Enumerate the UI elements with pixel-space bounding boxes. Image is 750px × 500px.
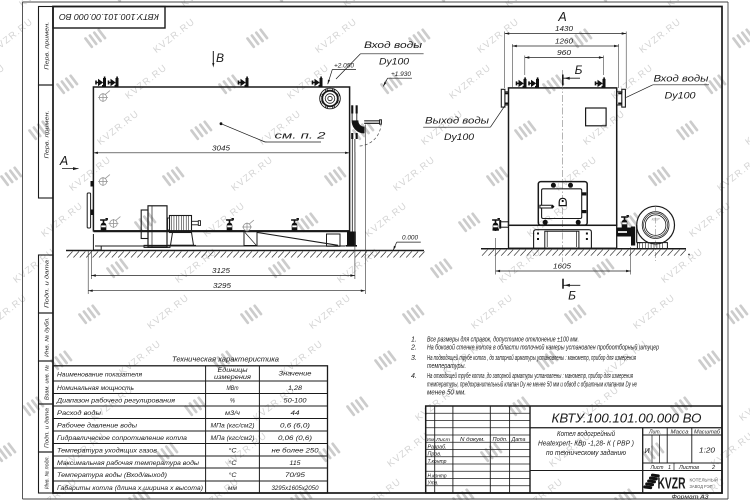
svg-text:МПа (кгс/см2): МПа (кгс/см2) <box>211 435 255 442</box>
svg-text:Вход воды: Вход воды <box>654 74 710 84</box>
svg-text:Т.контр: Т.контр <box>428 459 447 465</box>
svg-text:2.: 2. <box>410 345 417 352</box>
svg-text:ЗАВОД РЭП: ЗАВОД РЭП <box>690 484 713 489</box>
svg-text:°С: °С <box>229 447 237 455</box>
svg-text:Масштаб: Масштаб <box>694 430 721 436</box>
svg-text:Перв. примен.: Перв. примен. <box>44 111 50 159</box>
svg-text:3045: 3045 <box>212 145 230 152</box>
svg-text:Инв. № дубл.: Инв. № дубл. <box>44 317 50 357</box>
svg-text:4.: 4. <box>411 373 417 380</box>
svg-text:Разраб.: Разраб. <box>428 445 447 451</box>
svg-text:Температура уходящих газов: Температура уходящих газов <box>57 447 158 455</box>
svg-text:А: А <box>59 154 68 168</box>
svg-text:Котел водогрейный: Котел водогрейный <box>557 430 615 438</box>
svg-text:Значение: Значение <box>279 371 312 378</box>
svg-text:0,06 (0,6): 0,06 (0,6) <box>278 435 312 442</box>
svg-text:1430: 1430 <box>555 26 573 33</box>
svg-text:960: 960 <box>557 50 571 57</box>
svg-text:Рабочее давление воды: Рабочее давление воды <box>57 422 137 430</box>
svg-text:Лист: Лист <box>650 465 664 471</box>
svg-text:Подп. и дата: Подп. и дата <box>44 260 50 308</box>
svg-text:Лит.: Лит. <box>648 430 661 436</box>
svg-text:Техническая характеристика: Техническая характеристика <box>172 355 279 364</box>
svg-text:1605: 1605 <box>553 263 571 270</box>
svg-text:%: % <box>230 398 235 405</box>
svg-text:Единицы: Единицы <box>218 366 248 374</box>
svg-text:Лист: Лист <box>435 437 450 443</box>
svg-text:см. п. 2: см. п. 2 <box>275 131 327 142</box>
svg-text:КОТЕЛЬНЫЙ: КОТЕЛЬНЫЙ <box>690 476 719 483</box>
svg-text:Номинальная мощность: Номинальная мощность <box>57 385 135 392</box>
svg-text:Пров.: Пров. <box>428 452 442 458</box>
svg-text:1.: 1. <box>411 336 417 343</box>
svg-text:м3/ч: м3/ч <box>225 410 241 417</box>
svg-text:+1.930: +1.930 <box>391 71 412 78</box>
svg-text:50-100: 50-100 <box>284 398 307 405</box>
svg-text:0,6 (6,0): 0,6 (6,0) <box>280 423 310 430</box>
svg-text:1260: 1260 <box>555 39 573 46</box>
svg-text:температуры.: температуры. <box>427 363 466 370</box>
svg-text:°С: °С <box>229 471 237 479</box>
svg-text:Взам. инв. №: Взам. инв. № <box>44 365 50 400</box>
svg-text:Утв.: Утв. <box>428 481 439 487</box>
svg-text:Выход воды: Выход воды <box>425 116 490 126</box>
svg-text:Б: Б <box>575 63 583 77</box>
svg-text:115: 115 <box>290 460 301 467</box>
svg-text:3295: 3295 <box>213 283 231 290</box>
svg-text:Диапазон рабочего регулировани: Диапазон рабочего регулирования <box>56 397 176 405</box>
svg-text:N докум.: N докум. <box>460 437 485 443</box>
svg-text:КВТУ.100.101.00.000 ВО: КВТУ.100.101.00.000 ВО <box>58 12 159 21</box>
svg-text:Температура воды (Вход/выход): Температура воды (Вход/выход) <box>57 471 167 479</box>
svg-text:Подп. и дата: Подп. и дата <box>44 408 50 448</box>
svg-text:44: 44 <box>291 410 300 417</box>
svg-text:0.000: 0.000 <box>402 235 419 242</box>
svg-text:мм: мм <box>228 485 238 492</box>
svg-text:Все размеры для справок, допус: Все размеры для справок, допустимое откл… <box>427 335 579 343</box>
svg-text:менее 50 мм.: менее 50 мм. <box>427 390 466 397</box>
svg-text:Максимальная рабочая температу: Максимальная рабочая температура воды <box>57 459 199 467</box>
svg-text:МПа (кгс/см2): МПа (кгс/см2) <box>211 423 255 430</box>
svg-text:Наименование показателя: Наименование показателя <box>57 372 142 379</box>
svg-text:°С: °С <box>229 459 237 467</box>
svg-text:Масса: Масса <box>671 430 689 436</box>
svg-text:+2.050: +2.050 <box>334 62 355 69</box>
svg-text:КВЗР: КВЗР <box>652 218 661 222</box>
svg-text:Heatexpert- КВр -1,28- К ( РВР: Heatexpert- КВр -1,28- К ( РВР ) <box>538 441 634 448</box>
svg-text:Dy100: Dy100 <box>444 132 475 142</box>
svg-text:Подп.: Подп. <box>493 437 508 443</box>
svg-text:Гидравлическое сопротивление к: Гидравлическое сопротивление котла <box>57 434 187 442</box>
svg-text:На отводящей трубе котла ,до з: На отводящей трубе котла ,до запорной ар… <box>427 372 633 380</box>
svg-text:2: 2 <box>711 465 715 471</box>
svg-text:не более 250: не более 250 <box>272 447 319 455</box>
svg-text:Dy100: Dy100 <box>665 91 697 101</box>
svg-text:измерения: измерения <box>214 374 252 381</box>
svg-text:KVZR: KVZR <box>658 476 686 493</box>
svg-text:Перв. примен.: Перв. примен. <box>44 22 50 70</box>
svg-text:Габариты котла (длина х ширина: Габариты котла (длина х ширина х высота) <box>57 484 203 492</box>
svg-text:КВТУ.100.101.00.000 ВО: КВТУ.100.101.00.000 ВО <box>552 411 702 426</box>
svg-text:Инв. № подл.: Инв. № подл. <box>44 456 50 489</box>
svg-text:1: 1 <box>668 465 671 471</box>
svg-text:А: А <box>557 10 566 24</box>
svg-text:Расход воды: Расход воды <box>57 409 101 417</box>
svg-text:Н.контр: Н.контр <box>428 474 447 480</box>
svg-text:На подводящей трубе котла , д: На подводящей трубе котла , до запорной … <box>427 354 636 362</box>
svg-text:3.: 3. <box>411 355 417 362</box>
svg-text:Формат А3: Формат А3 <box>672 494 710 500</box>
svg-text:Изм: Изм <box>427 437 435 443</box>
svg-text:1:20: 1:20 <box>699 446 715 455</box>
svg-text:В: В <box>216 51 224 65</box>
svg-text:3125: 3125 <box>212 268 230 275</box>
svg-text:1,28: 1,28 <box>288 385 302 392</box>
svg-text:МВт: МВт <box>227 385 240 392</box>
svg-text:температуры, предохранительный: температуры, предохранительный клапан Dу… <box>427 380 637 388</box>
svg-text:На боковой стенке котла в обла: На боковой стенке котла в области топочн… <box>427 344 659 352</box>
svg-text:Дата: Дата <box>510 437 525 443</box>
svg-text:по техническому заданию: по техническому заданию <box>546 449 627 457</box>
svg-text:3295х1605х2050: 3295х1605х2050 <box>272 485 319 492</box>
svg-text:Dy100: Dy100 <box>379 57 410 67</box>
svg-text:Листов: Листов <box>678 465 699 471</box>
svg-text:Б: Б <box>568 288 576 302</box>
svg-text:И: И <box>645 446 651 455</box>
svg-text:Вход воды: Вход воды <box>364 40 423 50</box>
svg-text:70/95: 70/95 <box>285 472 305 479</box>
